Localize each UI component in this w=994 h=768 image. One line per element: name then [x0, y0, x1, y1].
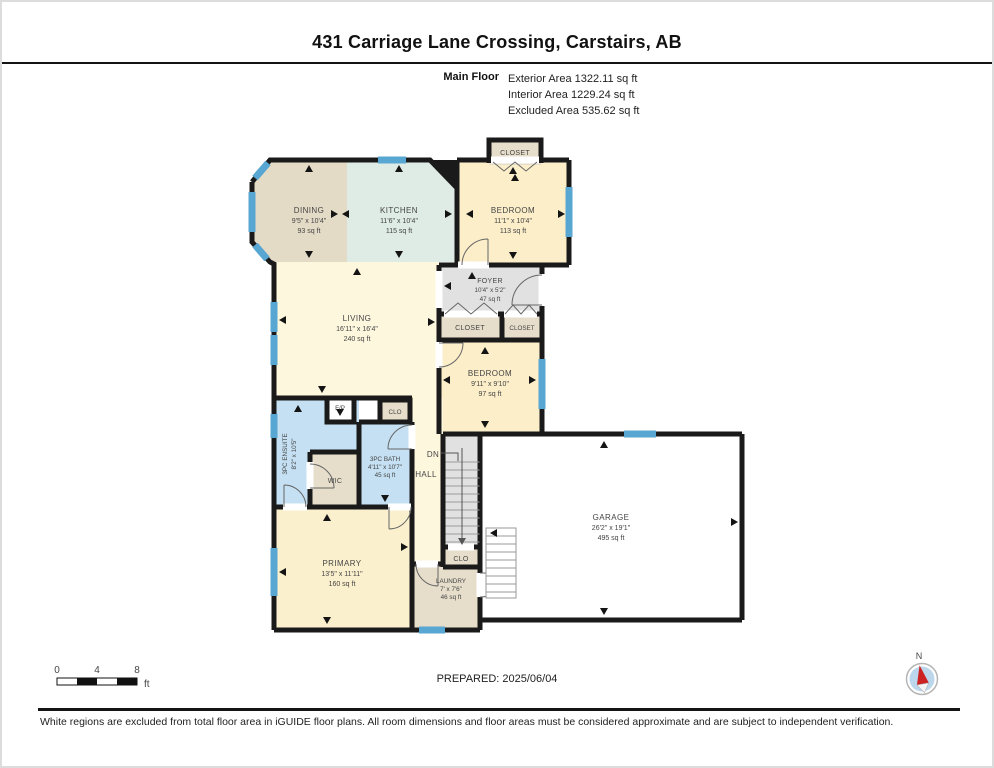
room-primary-fill [274, 507, 412, 630]
svg-text:93 sq ft: 93 sq ft [298, 228, 321, 235]
floorplan-page: 431 Carriage Lane Crossing, Carstairs, A… [0, 0, 994, 768]
prepared-date: PREPARED: 2025/06/04 [2, 673, 992, 685]
label-hall: HALL [415, 470, 437, 479]
svg-text:45 sq ft: 45 sq ft [375, 472, 396, 479]
svg-text:26'2" x 19'1": 26'2" x 19'1" [592, 525, 631, 532]
svg-text:3PC ENSUITE: 3PC ENSUITE [282, 433, 289, 474]
label-closet-top: CLOSET [500, 150, 530, 157]
svg-text:BEDROOM: BEDROOM [491, 206, 535, 215]
svg-text:495 sq ft: 495 sq ft [598, 535, 625, 542]
label-clo-upper: CLO [389, 409, 402, 416]
svg-text:7' x 7'6": 7' x 7'6" [440, 586, 462, 593]
label-closet-b: CLOSET [509, 325, 534, 332]
svg-text:46 sq ft: 46 sq ft [441, 594, 462, 601]
svg-text:KITCHEN: KITCHEN [380, 206, 418, 215]
svg-text:160 sq ft: 160 sq ft [329, 581, 356, 588]
svg-text:BEDROOM: BEDROOM [468, 369, 512, 378]
svg-text:PRIMARY: PRIMARY [322, 559, 361, 568]
svg-text:11'1" x 10'4": 11'1" x 10'4" [494, 218, 532, 225]
svg-text:N: N [916, 651, 923, 661]
label-clo-lower: CLO [453, 556, 469, 563]
label-fireplace: F/P [335, 405, 345, 412]
svg-text:9'11" x 9'10": 9'11" x 9'10" [471, 381, 509, 388]
svg-text:13'5" x 11'11": 13'5" x 11'11" [321, 571, 363, 578]
svg-text:8'2" x 10'5": 8'2" x 10'5" [291, 438, 298, 469]
svg-text:GARAGE: GARAGE [593, 513, 630, 522]
svg-text:10'4" x 5'2": 10'4" x 5'2" [474, 287, 505, 294]
label-closet-a: CLOSET [455, 325, 485, 332]
svg-text:DINING: DINING [294, 206, 324, 215]
garage-steps [486, 528, 516, 598]
svg-text:4'11" x 10'7": 4'11" x 10'7" [368, 464, 402, 471]
svg-text:240 sq ft: 240 sq ft [344, 336, 371, 343]
disclaimer-text: White regions are excluded from total fl… [40, 716, 970, 728]
svg-text:113 sq ft: 113 sq ft [500, 228, 526, 235]
svg-text:97 sq ft: 97 sq ft [479, 391, 502, 398]
floorplan-drawing: DINING 9'5" x 10'4" 93 sq ft KITCHEN 11'… [2, 2, 994, 768]
label-dn: DN [427, 450, 439, 459]
svg-text:FOYER: FOYER [477, 278, 503, 285]
svg-text:LAUNDRY: LAUNDRY [436, 578, 467, 585]
svg-text:9'5" x 10'4": 9'5" x 10'4" [292, 218, 327, 225]
svg-text:47 sq ft: 47 sq ft [480, 296, 501, 303]
footer-divider [38, 708, 960, 711]
svg-text:115 sq ft: 115 sq ft [386, 228, 412, 235]
svg-text:11'6" x 10'4": 11'6" x 10'4" [380, 218, 418, 225]
label-wic: WIC [328, 478, 343, 485]
svg-text:16'11" x 16'4": 16'11" x 16'4" [336, 326, 378, 333]
svg-text:3PC BATH: 3PC BATH [370, 456, 401, 463]
svg-text:LIVING: LIVING [343, 314, 372, 323]
